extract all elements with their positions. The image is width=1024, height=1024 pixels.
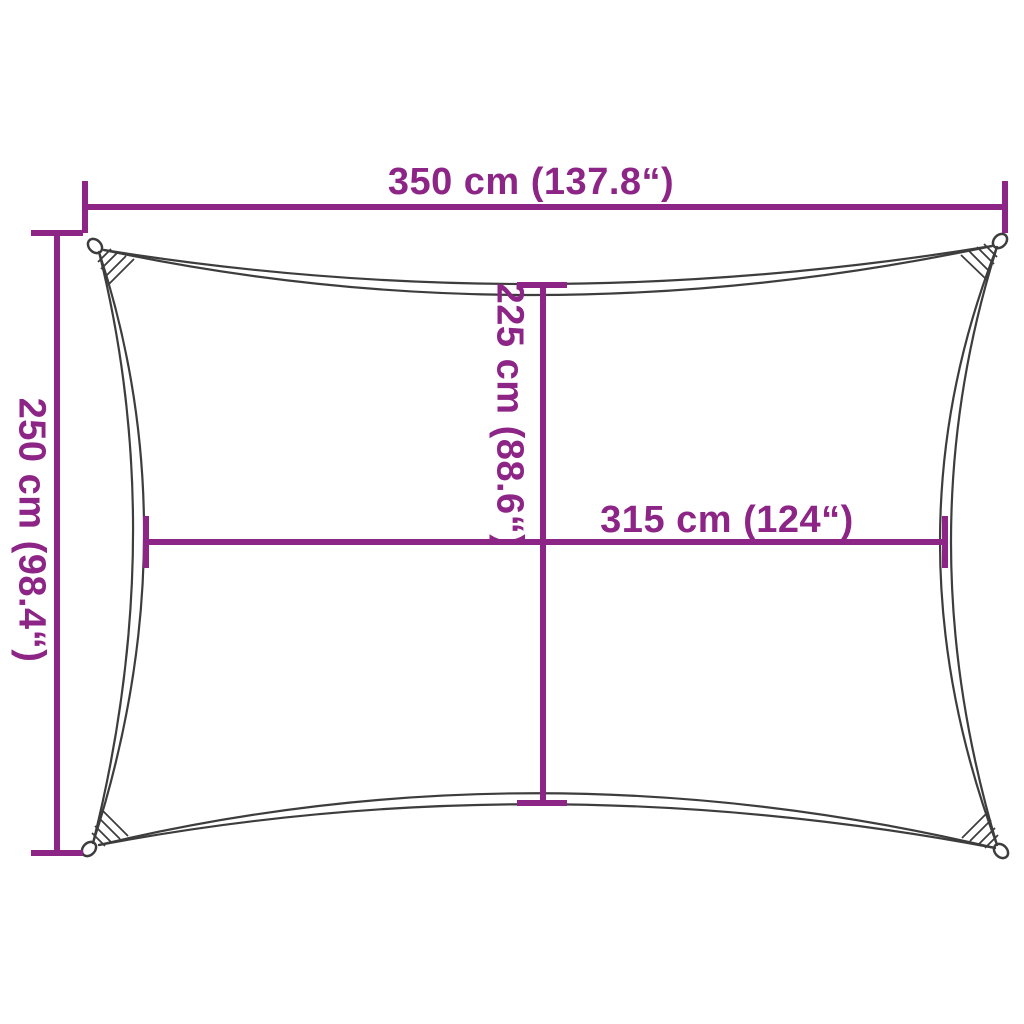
label-width-top: 350 cm (137.8“) — [388, 161, 674, 204]
sail-edge-top-outer — [104, 246, 992, 284]
sail-edge-bottom-outer — [99, 804, 995, 848]
sail-edge-right-inner — [940, 247, 997, 845]
label-height-left: 250 cm (98.4“) — [10, 398, 53, 663]
sail-edge-right-outer — [951, 247, 997, 845]
dimension-diagram: 350 cm (137.8“) 250 cm (98.4“) 225 cm (8… — [0, 0, 1024, 1024]
corner-grommet-bottom-right — [962, 812, 1011, 861]
label-inner-height: 225 cm (88.6“) — [488, 283, 531, 548]
corner-grommet-top-right — [961, 231, 1010, 280]
corner-grommet-top-left — [85, 236, 134, 285]
corner-grommet-bottom-left — [79, 810, 128, 859]
label-inner-width: 315 cm (124“) — [600, 499, 854, 542]
sail-edge-left-outer — [93, 252, 133, 843]
